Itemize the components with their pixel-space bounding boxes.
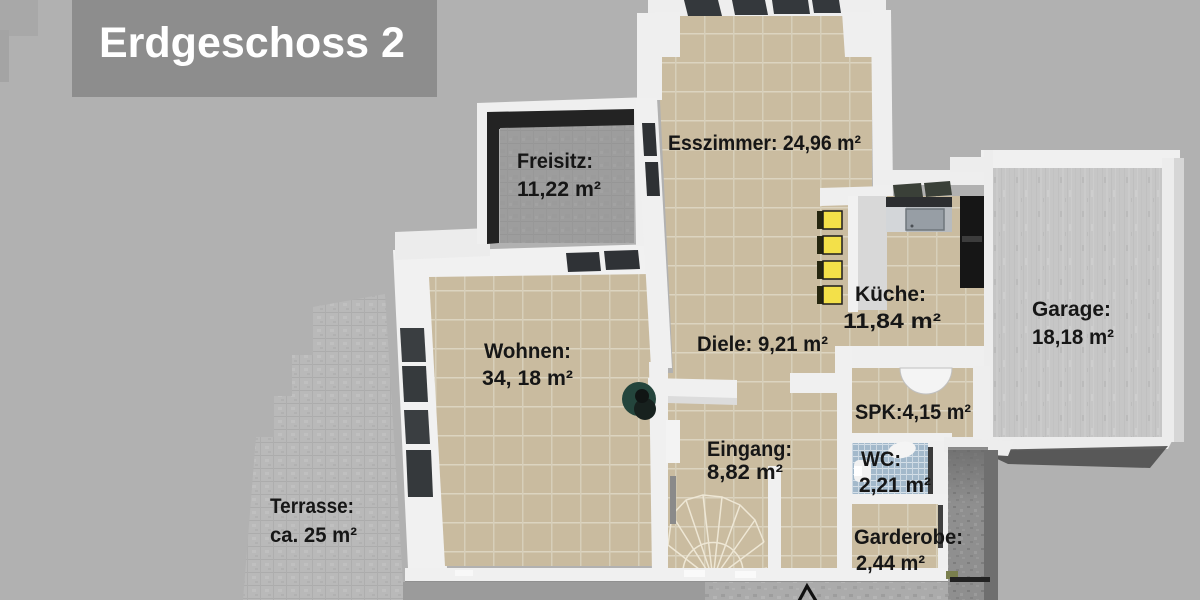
- svg-text:Wohnen:: Wohnen:: [484, 340, 571, 363]
- svg-text:Diele: 9,21 m²: Diele: 9,21 m²: [697, 333, 828, 356]
- svg-text:2,44 m²: 2,44 m²: [856, 552, 925, 575]
- svg-text:34, 18 m²: 34, 18 m²: [482, 367, 573, 390]
- svg-text:8,82 m²: 8,82 m²: [707, 461, 783, 484]
- svg-text:Garderobe:: Garderobe:: [854, 526, 963, 549]
- svg-text:Eingang:: Eingang:: [707, 438, 792, 461]
- svg-text:Küche:: Küche:: [855, 283, 926, 306]
- svg-text:18,18 m²: 18,18 m²: [1032, 326, 1114, 349]
- svg-text:11,84 m²: 11,84 m²: [843, 310, 941, 333]
- svg-text:2,21 m²: 2,21 m²: [859, 474, 931, 497]
- svg-text:SPK:4,15 m²: SPK:4,15 m²: [855, 401, 971, 424]
- svg-text:Terrasse:: Terrasse:: [270, 495, 354, 518]
- svg-text:ca. 25 m²: ca. 25 m²: [270, 524, 357, 547]
- svg-text:Esszimmer: 24,96 m²: Esszimmer: 24,96 m²: [668, 132, 861, 155]
- svg-text:WC:: WC:: [861, 448, 901, 471]
- svg-text:Garage:: Garage:: [1032, 298, 1111, 321]
- svg-text:11,22 m²: 11,22 m²: [517, 178, 601, 201]
- svg-text:Erdgeschoss 2: Erdgeschoss 2: [99, 19, 405, 67]
- svg-text:Freisitz:: Freisitz:: [517, 150, 593, 173]
